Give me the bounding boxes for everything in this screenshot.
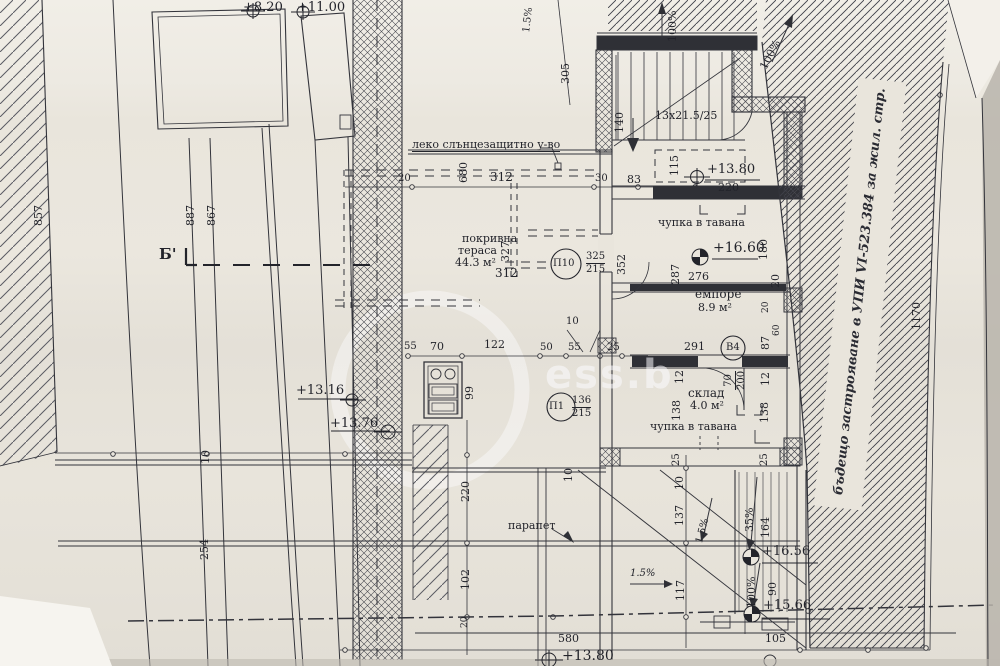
- door-v4-height: 200: [735, 371, 748, 390]
- dim-312-mid: 312: [495, 267, 518, 279]
- survey-point-icon: [692, 249, 708, 265]
- dim-352: 352: [616, 254, 627, 275]
- dim-220b: 220: [460, 481, 471, 502]
- dim-60: 60: [773, 325, 782, 336]
- level-1316: +13.16: [296, 384, 344, 397]
- dim-887: 887: [185, 205, 196, 226]
- parapet-note: парапет: [508, 520, 555, 531]
- door-v4-width: 70: [723, 374, 734, 387]
- dim-180: 180: [758, 239, 769, 260]
- door-size-p1: 136 215: [572, 396, 591, 419]
- dim-20-col: 20: [762, 302, 771, 313]
- dim-138-right: 138: [759, 402, 770, 423]
- dim-12-right: 12: [760, 372, 771, 386]
- dim-137: 137: [674, 505, 685, 526]
- dim-867: 867: [206, 205, 217, 226]
- slope-15-mid: 1.5%: [630, 569, 655, 579]
- dim-164: 164: [760, 517, 771, 538]
- dim-305: 305: [560, 63, 571, 84]
- dim-10b: 10: [563, 468, 574, 482]
- dim-254: 254: [199, 539, 210, 560]
- survey-point-icon: [743, 549, 759, 565]
- door-p10-height: 215: [586, 263, 605, 276]
- dim-50: 50: [540, 343, 553, 353]
- dim-291: 291: [684, 341, 705, 352]
- dim-117: 117: [675, 580, 686, 601]
- door-tag-p10: П10: [553, 259, 574, 269]
- slope-35: 35%: [744, 508, 755, 532]
- level-1380-top: +13.80: [707, 163, 755, 176]
- level-820: +8.20: [243, 1, 283, 14]
- dim-857: 857: [33, 205, 44, 226]
- door-p1-width: 136: [572, 395, 591, 406]
- dim-312-top: 312: [490, 171, 513, 183]
- left-boundary-hatch: [0, 0, 57, 466]
- photo-watermark: ess.b: [545, 352, 674, 398]
- sunshade-note: леко слънцезащитно у-во: [412, 139, 560, 152]
- door-p1-height: 215: [572, 407, 591, 420]
- dim-1170: 1170: [911, 302, 922, 330]
- dim-220-level: 220: [718, 182, 739, 193]
- ceiling-bend-lower: чупка в тавана: [650, 421, 737, 432]
- level-1376: +13.76: [330, 417, 378, 430]
- door-p10-width: 325: [586, 251, 605, 262]
- floor-plan-scan: ess.b +8.20 +11.00 леко слънцезащитно у-…: [0, 0, 1000, 666]
- dim-30: 30: [595, 174, 608, 184]
- dim-276: 276: [688, 271, 709, 282]
- dim-20-wall: 20: [398, 174, 411, 184]
- slope-100-ramp: 100%: [746, 577, 757, 608]
- dim-10-fix: 10: [566, 317, 579, 327]
- survey-point-icon: [744, 606, 760, 622]
- dim-70: 70: [430, 341, 444, 352]
- dim-99: 99: [464, 386, 475, 400]
- dim-12-left: 12: [674, 370, 685, 384]
- room-storage: склад: [688, 387, 724, 399]
- dim-680: 680: [458, 162, 469, 183]
- dim-105: 105: [765, 633, 786, 644]
- dim-55a: 55: [404, 342, 417, 352]
- dim-20d: 20: [461, 617, 470, 628]
- door-tag-v4: В4: [726, 343, 740, 353]
- level-1100: +11.00: [297, 1, 345, 14]
- ceiling-bend-upper: чупка в тавана: [658, 217, 745, 228]
- upper-balcony-outlines: [152, 9, 355, 140]
- dim-138-left: 138: [671, 400, 682, 421]
- dim-10-left: 10: [200, 450, 211, 464]
- level-1566: +15.66: [763, 599, 811, 612]
- door-size-p10: 325 215: [586, 252, 605, 275]
- site-boundary-lines: [113, 0, 360, 666]
- slope-100-a: 100%: [667, 11, 678, 42]
- dim-25-wall-r: 25: [760, 453, 770, 466]
- level-1656: +16.56: [762, 545, 810, 558]
- dim-10c: 10: [674, 476, 685, 490]
- dim-327: 327: [500, 241, 511, 262]
- room-storage-area: 4.0 м²: [690, 400, 724, 411]
- room-terrace-area: 44.3 м²: [455, 257, 496, 268]
- stair-spec: 13x21.5/25: [655, 110, 717, 121]
- dim-122: 122: [484, 339, 505, 350]
- dim-25-wall-l: 25: [672, 453, 682, 466]
- dim-90: 90: [767, 582, 778, 596]
- room-terrace-2: тераса: [458, 245, 497, 256]
- section-label: Б': [159, 247, 176, 262]
- door-tag-p1: П1: [549, 402, 564, 412]
- dim-55b: 55: [568, 343, 581, 353]
- dim-83: 83: [627, 174, 641, 185]
- dim-102: 102: [460, 569, 471, 590]
- dim-287: 287: [670, 264, 681, 285]
- dim-580: 580: [558, 633, 579, 644]
- dim-140: 140: [614, 112, 625, 133]
- dim-25c: 25: [607, 343, 620, 353]
- level-1380-bottom: +13.80: [562, 649, 614, 663]
- door-size-v4: 70 200: [724, 371, 747, 390]
- dim-87: 87: [760, 336, 771, 350]
- dim-20-right: 20: [770, 274, 781, 288]
- room-empore: емпоре: [695, 288, 741, 300]
- dim-115: 115: [669, 155, 680, 176]
- room-empore-area: 8.9 м²: [698, 302, 732, 313]
- central-wall-band: [353, 0, 448, 660]
